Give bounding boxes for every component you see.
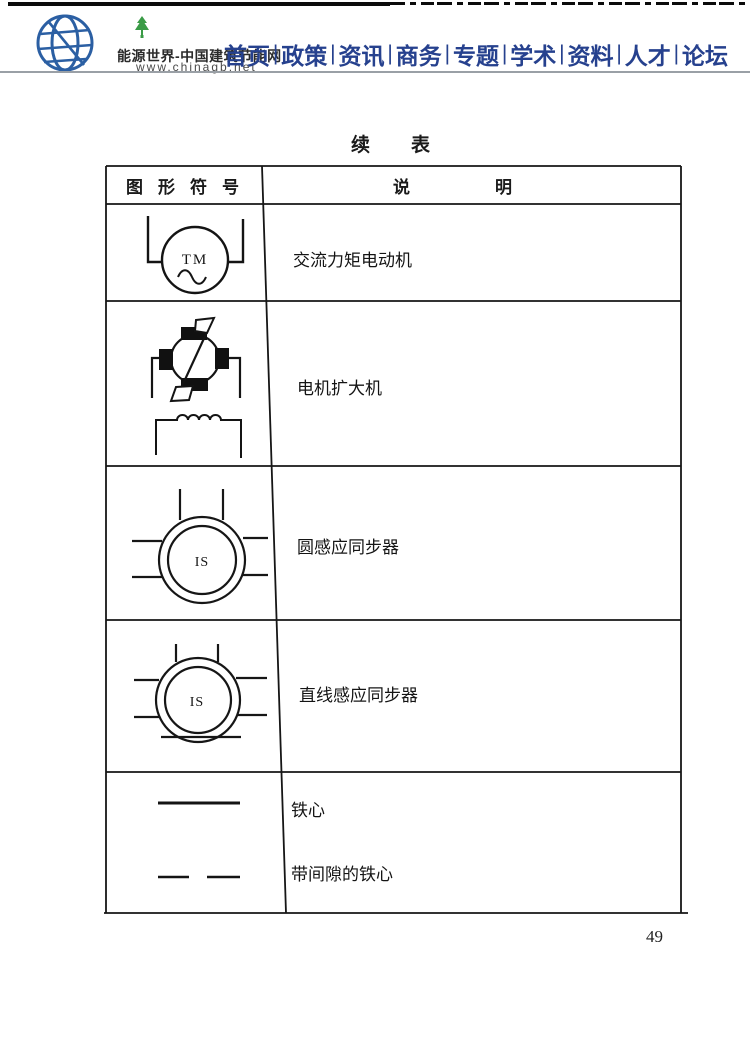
rotating-machine-amplifier-symbol <box>152 318 241 458</box>
table-header-description-column: 说明 <box>393 173 597 198</box>
scanned-document-page: 能源世界-中国建筑节能网 www.chinagb.net 首页 | 政策 | 资… <box>0 0 750 1062</box>
row-description-iron-core: 铁心 <box>291 796 325 821</box>
linear-induction-synchronizer-symbol: IS <box>134 644 267 742</box>
ac-torque-motor-symbol: TM <box>148 216 243 293</box>
row-description-circular-synchronizer: 圆感应同步器 <box>297 533 399 558</box>
motor-symbol-label: TM <box>182 252 209 268</box>
page-number: 49 <box>646 927 663 947</box>
row-description-ac-torque-motor: 交流力矩电动机 <box>293 246 412 271</box>
symbols-table: TM IS <box>0 0 750 1062</box>
linear-synchronizer-label: IS <box>190 695 204 710</box>
row-description-linear-synchronizer: 直线感应同步器 <box>299 681 418 706</box>
circular-induction-synchronizer-symbol: IS <box>132 489 268 603</box>
table-header-symbol-column: 图形符号 <box>126 173 254 198</box>
row-description-iron-core-with-gap: 带间隙的铁心 <box>291 860 393 885</box>
row-description-machine-amplifier: 电机扩大机 <box>297 374 382 399</box>
circular-synchronizer-label: IS <box>195 555 209 570</box>
